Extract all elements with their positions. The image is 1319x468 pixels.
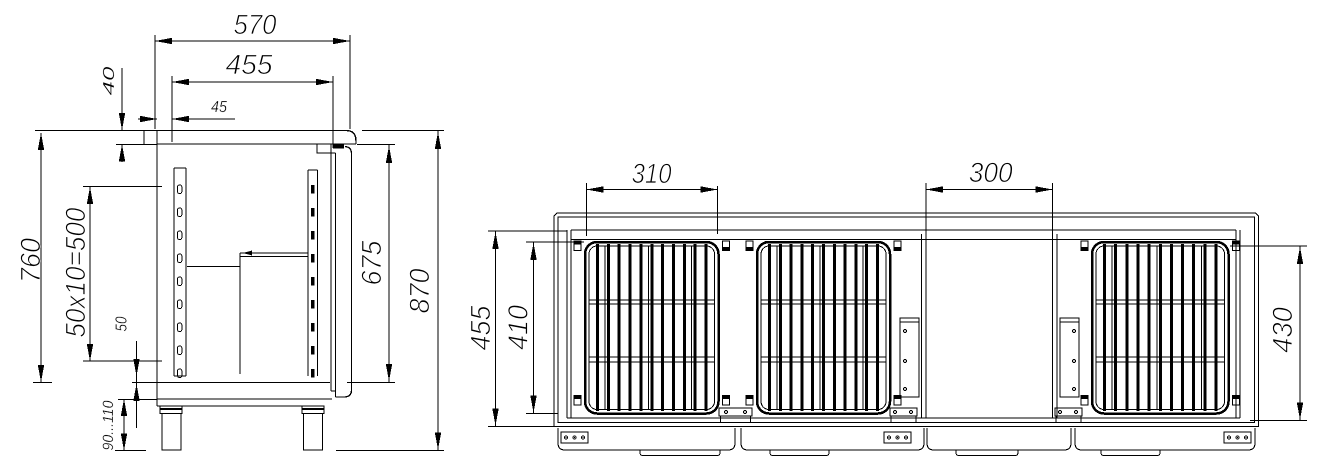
svg-text:90...110: 90...110 (100, 400, 117, 451)
svg-text:45: 45 (211, 99, 227, 116)
svg-text:300: 300 (969, 157, 1013, 188)
svg-text:870: 870 (404, 268, 435, 313)
svg-text:50: 50 (114, 316, 131, 331)
svg-text:675: 675 (356, 240, 387, 285)
svg-text:410: 410 (503, 305, 534, 350)
svg-text:310: 310 (632, 158, 672, 189)
svg-text:455: 455 (465, 305, 496, 350)
svg-text:455: 455 (226, 49, 273, 80)
svg-text:430: 430 (1267, 307, 1298, 353)
svg-text:570: 570 (234, 9, 277, 40)
svg-text:760: 760 (15, 238, 46, 283)
svg-text:40: 40 (101, 66, 118, 95)
svg-text:50x10=500: 50x10=500 (60, 207, 91, 337)
